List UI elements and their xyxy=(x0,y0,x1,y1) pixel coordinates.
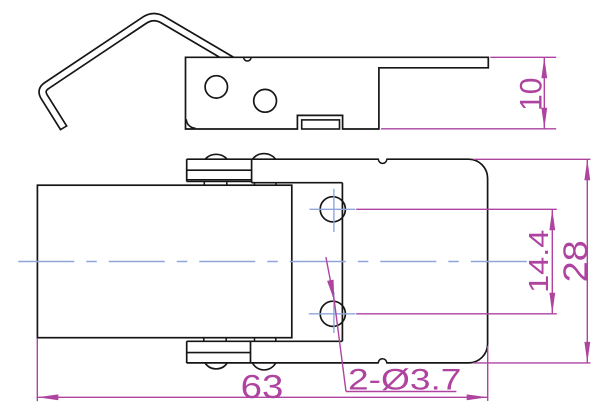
svg-text:2-Ø3.7: 2-Ø3.7 xyxy=(348,364,461,397)
svg-text:14.4: 14.4 xyxy=(523,230,554,293)
svg-text:28: 28 xyxy=(557,240,595,282)
svg-text:63: 63 xyxy=(241,369,284,405)
svg-text:10: 10 xyxy=(513,78,549,111)
